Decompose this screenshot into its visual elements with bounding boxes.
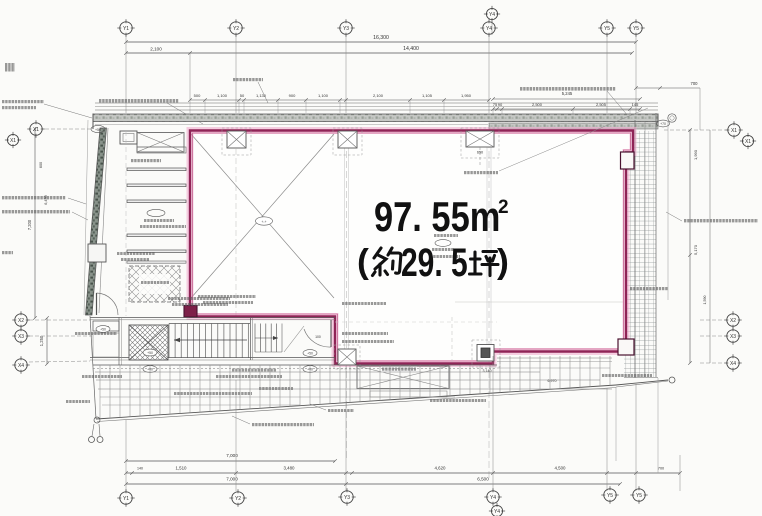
svg-text:4,500: 4,500 [555, 466, 567, 471]
svg-text:X1: X1 [745, 139, 751, 145]
svg-text:(: ( [357, 243, 369, 281]
svg-text:1,950: 1,950 [461, 93, 472, 98]
svg-text:2: 2 [498, 197, 509, 218]
svg-text:6,970: 6,970 [548, 379, 557, 383]
svg-text:1,250: 1,250 [39, 335, 44, 346]
svg-text:Y5: Y5 [636, 493, 642, 499]
svg-text:6,430: 6,430 [44, 195, 48, 205]
svg-text:): ) [497, 243, 509, 281]
svg-text:1,100: 1,100 [318, 93, 329, 98]
svg-text:2,100: 2,100 [373, 93, 384, 98]
svg-text:7,000: 7,000 [226, 477, 238, 482]
svg-text:Y2: Y2 [233, 26, 239, 32]
svg-text:600: 600 [39, 162, 43, 168]
svg-text:Y4: Y4 [486, 26, 492, 32]
svg-text:900: 900 [289, 93, 296, 98]
svg-text:X3: X3 [18, 334, 24, 340]
svg-text:7,000: 7,000 [226, 453, 238, 458]
svg-text:Y4: Y4 [494, 509, 500, 515]
svg-text:1,510: 1,510 [176, 466, 188, 471]
svg-text:Y5: Y5 [633, 26, 639, 32]
svg-text:97. 55m: 97. 55m [374, 194, 500, 241]
svg-text:Y3: Y3 [343, 26, 349, 32]
svg-text:5,170: 5,170 [693, 244, 698, 255]
svg-text:+50: +50 [100, 328, 106, 332]
svg-text:6,500: 6,500 [477, 477, 489, 482]
svg-text:29. 5: 29. 5 [401, 241, 468, 285]
svg-text:Y2: Y2 [235, 496, 241, 502]
svg-text:50: 50 [240, 93, 245, 98]
svg-text:500: 500 [194, 93, 201, 98]
svg-text:Y1: Y1 [123, 496, 129, 502]
svg-text:3,480: 3,480 [284, 466, 296, 471]
svg-text:100: 100 [315, 335, 321, 339]
svg-text:X4: X4 [730, 361, 736, 367]
svg-text:Y4: Y4 [490, 495, 496, 501]
svg-text:700: 700 [658, 467, 664, 471]
svg-text:X2: X2 [730, 318, 736, 324]
svg-text:X3: X3 [730, 334, 736, 340]
svg-text:+-+: +-+ [261, 220, 266, 224]
svg-text:Y1: Y1 [123, 26, 129, 32]
svg-text:Y5: Y5 [607, 493, 613, 499]
svg-text:X1: X1 [731, 128, 737, 134]
svg-text:1,990: 1,990 [693, 149, 698, 160]
svg-text:Y5: Y5 [604, 26, 610, 32]
svg-text:16,300: 16,300 [373, 35, 389, 41]
svg-text:X4: X4 [18, 363, 24, 369]
svg-text:4,620: 4,620 [435, 466, 447, 471]
svg-text:Y3: Y3 [344, 495, 350, 501]
svg-text:X2: X2 [18, 318, 24, 324]
svg-text:14,400: 14,400 [403, 46, 419, 52]
svg-text:1,105: 1,105 [422, 93, 433, 98]
svg-text:700: 700 [691, 81, 699, 86]
svg-text:1,590: 1,590 [703, 296, 707, 305]
svg-text:+70: +70 [660, 122, 666, 126]
svg-text:140: 140 [137, 467, 143, 471]
svg-text:2,100: 2,100 [150, 47, 162, 52]
svg-text:+50: +50 [307, 352, 313, 356]
svg-text:Y4: Y4 [489, 12, 495, 18]
svg-text:X1: X1 [10, 138, 16, 144]
svg-text:X1: X1 [33, 127, 39, 133]
svg-text:+50: +50 [147, 351, 153, 355]
svg-text:5,245: 5,245 [562, 91, 573, 96]
svg-text:+50: +50 [95, 128, 101, 132]
svg-text:1,100: 1,100 [217, 93, 228, 98]
svg-text:7,200: 7,200 [27, 219, 32, 230]
